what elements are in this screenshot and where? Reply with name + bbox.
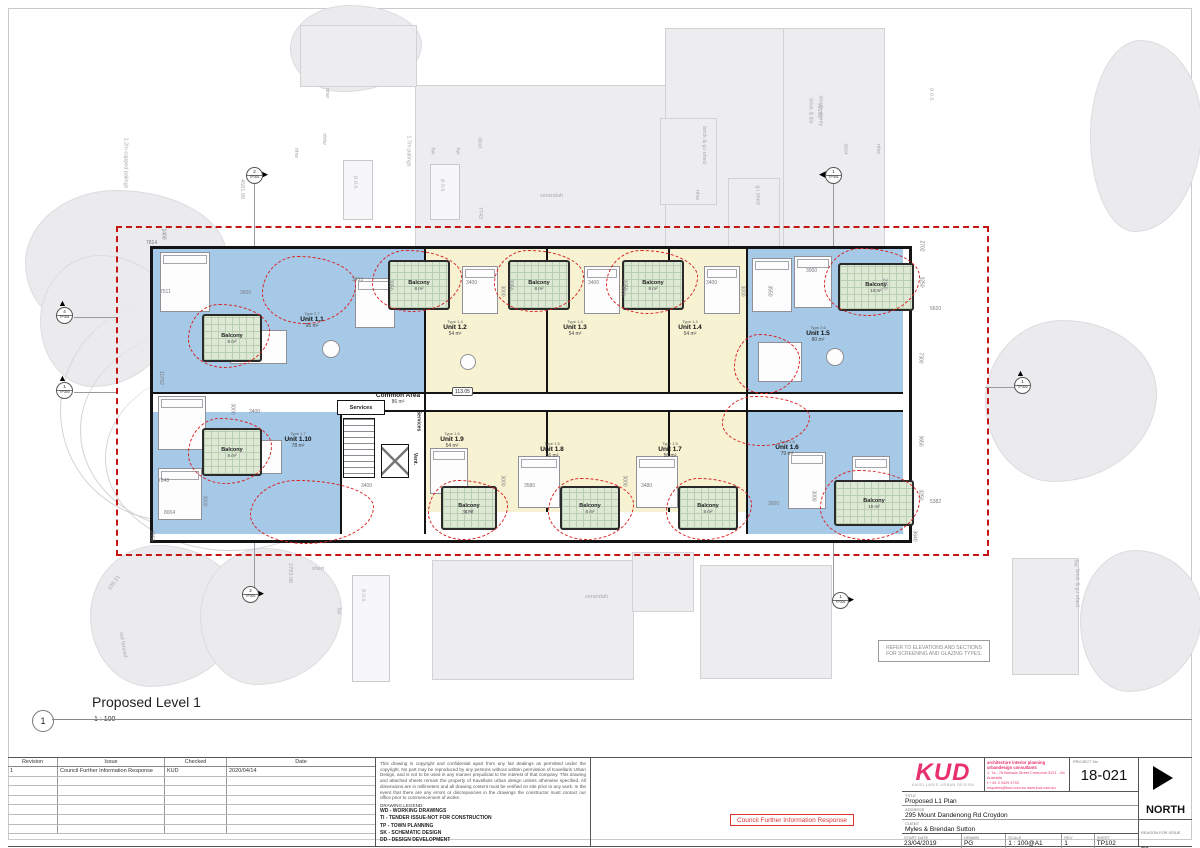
table-row bbox=[8, 795, 375, 805]
revision-table: Revision Issue Checked Date 1 Council Fu… bbox=[8, 758, 376, 846]
neighbour-shed bbox=[632, 552, 694, 612]
dimension-text: 3000 bbox=[806, 268, 817, 274]
table-row: 1 Council Further Information Response K… bbox=[8, 767, 375, 777]
dimension-text: 3400 bbox=[249, 409, 260, 415]
unit-area: 56 m² bbox=[658, 453, 681, 459]
dimension-text: 1400 bbox=[161, 228, 167, 239]
north-cell: NORTH REASON FOR ISSUE TP bbox=[1139, 758, 1192, 846]
unit-name: Unit 1.8 bbox=[540, 446, 563, 453]
context-label: verandah bbox=[540, 193, 563, 199]
context-label: door bbox=[843, 143, 849, 154]
section-marker: ▶ 1TP301 bbox=[830, 588, 850, 610]
table-row bbox=[8, 824, 375, 834]
section-marker: ▶ 2TP301 bbox=[240, 582, 260, 604]
rev-col-header: Issue bbox=[58, 758, 165, 767]
context-label: p.o.s. bbox=[440, 179, 446, 192]
section-marker: ▶ 2TP301 bbox=[244, 163, 264, 185]
neighbour-building bbox=[300, 25, 417, 87]
vent-shaft: Vent. bbox=[412, 453, 418, 465]
section-marker: ▲ 4TP301 bbox=[54, 303, 74, 325]
dimension-text: 3250 bbox=[918, 489, 924, 500]
context-label: g.i shed bbox=[755, 185, 761, 204]
dimension-text: 3000 bbox=[500, 475, 506, 486]
unit-area: 54 m² bbox=[678, 331, 701, 337]
unit-label: Type 1.4 Unit 1.2 54 m² bbox=[443, 319, 466, 337]
council-stamp: Council Further Information Response bbox=[730, 814, 854, 826]
pos-box bbox=[352, 575, 390, 682]
address-row: ADDRESS 295 Mount Dandenong Rd Croydon bbox=[902, 806, 1138, 820]
title-block: KUD KAVELLARIS URBAN DESIGN architecture… bbox=[902, 758, 1139, 846]
context-label: p.o.s. bbox=[361, 589, 367, 602]
context-label: verandah bbox=[585, 594, 608, 600]
reason-for-issue: REASON FOR ISSUE TP bbox=[1139, 819, 1192, 848]
services-room-vertical: Services bbox=[415, 411, 421, 432]
drawing-sheet: Services Services Vent. Common Area 86 m… bbox=[0, 0, 1200, 848]
legend-item: WD - WORKING DRAWINGS bbox=[380, 808, 586, 815]
context-label: single storey bbox=[817, 96, 823, 127]
dimension-text: 2702 bbox=[919, 240, 925, 251]
table-row bbox=[8, 814, 375, 824]
table-row bbox=[8, 805, 375, 815]
rev-col-header: Date bbox=[227, 758, 376, 767]
neighbour-building bbox=[700, 565, 832, 679]
section-line bbox=[74, 317, 116, 318]
unit-area: 54 m² bbox=[563, 331, 586, 337]
context-label: shed bbox=[312, 566, 324, 572]
context-label: nhw bbox=[694, 190, 700, 200]
context-label: hw bbox=[430, 147, 436, 154]
neighbour-shed bbox=[1012, 558, 1079, 675]
context-label: p.o.s. bbox=[353, 176, 359, 189]
north-label: NORTH bbox=[1139, 804, 1192, 816]
context-label: nhw bbox=[875, 144, 881, 154]
dimension-text: 3000 bbox=[811, 490, 817, 501]
kud-logo: KUD KAVELLARIS URBAN DESIGN bbox=[902, 758, 985, 791]
unit-name: Unit 1.6 bbox=[775, 444, 798, 451]
dimension-text: 3480 bbox=[641, 483, 652, 489]
section-marker: ▲ 1TP300 bbox=[54, 378, 74, 400]
context-label: door bbox=[477, 137, 483, 148]
unit-label: Type 1.5 Unit 1.7 56 m² bbox=[658, 441, 681, 459]
drawing-number-bubble: 1 bbox=[32, 710, 54, 732]
unit-area: 54 m² bbox=[440, 443, 463, 449]
pos-box bbox=[343, 160, 373, 220]
unit-area: 56 m² bbox=[540, 453, 563, 459]
dimension-text: 8004 bbox=[164, 510, 175, 516]
context-label: nhw bbox=[293, 148, 299, 158]
dimension-text: 3000 bbox=[768, 501, 779, 507]
consultant-info: architecture interior planning urbandesi… bbox=[985, 758, 1070, 791]
unit-area: 54 m² bbox=[443, 331, 466, 337]
unit-name: Unit 1.7 bbox=[658, 446, 681, 453]
rev-col-header: Checked bbox=[165, 758, 227, 767]
legend-item: DD - DESIGN DEVELOPMENT bbox=[380, 837, 586, 844]
copyright-note: This drawing is copyright and confidenti… bbox=[380, 761, 586, 801]
section-marker: ▲ 1TP300 bbox=[1012, 373, 1032, 395]
dimension-text: 3679 bbox=[462, 510, 473, 516]
context-label: 1.7m palings bbox=[406, 135, 412, 166]
dimension-text: 7814 bbox=[146, 240, 157, 246]
title-underline bbox=[52, 719, 1192, 720]
unit-name: Unit 1.4 bbox=[678, 324, 701, 331]
legend-item: TI - TENDER ISSUE-NOT FOR CONSTRUCTION bbox=[380, 815, 586, 822]
dimension-text: 3000 bbox=[622, 475, 628, 486]
dimension-text: 3000 bbox=[202, 495, 208, 506]
context-label: hw bbox=[1073, 559, 1079, 566]
dimension-text: 10752 bbox=[158, 371, 164, 385]
dimension-text: 7300 bbox=[918, 352, 924, 363]
context-label: 1.2m capped palings bbox=[122, 138, 128, 189]
context-label: p.o.s. bbox=[929, 88, 935, 101]
dimension-text: 3000 bbox=[620, 285, 626, 296]
dimension-text: 2150 bbox=[882, 278, 888, 289]
dimension-text: 3250 bbox=[919, 276, 925, 287]
project-number-cell: PROJECT No 18-021 bbox=[1070, 758, 1138, 791]
table-row bbox=[8, 786, 375, 796]
dimension-text: 3580 bbox=[524, 483, 535, 489]
dimension-text: 3400 bbox=[466, 280, 477, 286]
context-label: 2783.08 bbox=[287, 563, 293, 583]
dimension-text: 3550 bbox=[767, 285, 773, 296]
dimension-text: 3433 bbox=[352, 277, 363, 283]
unit-name: Unit 1.9 bbox=[440, 436, 463, 443]
unit-label: Type 1.4 Unit 1.4 54 m² bbox=[678, 319, 701, 337]
client-row: CLIENT Myles & Brendan Sutton bbox=[902, 820, 1138, 834]
tree bbox=[1090, 40, 1200, 232]
common-area-label: Common Area 86 m² bbox=[376, 392, 420, 405]
meta-row: START DATE 23/04/2019 DRAWN PG SCALE 1 :… bbox=[902, 834, 1138, 848]
unit-label: Type 2.6 Unit 1.5 80 m² bbox=[806, 325, 829, 343]
dimension-text: 3000 bbox=[740, 285, 746, 296]
drawing-title: Proposed Level 1 bbox=[92, 694, 201, 710]
context-label: hw bbox=[336, 607, 342, 614]
context-label: nhw bbox=[324, 88, 330, 98]
dimension-text: 7511 bbox=[160, 289, 171, 295]
section-line bbox=[74, 392, 116, 393]
dimension-text: 7648 bbox=[158, 478, 169, 484]
drawing-legend: WD - WORKING DRAWINGSTI - TENDER ISSUE-N… bbox=[380, 808, 586, 844]
project-number: 18-021 bbox=[1073, 767, 1135, 784]
dimension-text: 3000 bbox=[500, 285, 506, 296]
context-label: brick & g.i shed bbox=[1074, 569, 1080, 607]
unit-name: Unit 1.3 bbox=[563, 324, 586, 331]
table-row bbox=[8, 776, 375, 786]
unit-label: Type 1.7 Unit 1.10 78 m² bbox=[284, 431, 311, 449]
title-row: TITLE Proposed L1 Plan bbox=[902, 792, 1138, 806]
unit-label: Type 1.6 Unit 1.9 54 m² bbox=[440, 431, 463, 449]
lift bbox=[381, 444, 409, 478]
unit-name: Unit 1.10 bbox=[284, 436, 311, 443]
wall bbox=[746, 249, 748, 534]
dimension-text: 3400 bbox=[361, 483, 372, 489]
unit-name: Unit 1.5 bbox=[806, 330, 829, 337]
section-marker: ◀ 1TP301 bbox=[823, 163, 843, 185]
unit-area: 79 m² bbox=[775, 451, 798, 457]
stamp-cell: Council Further Information Response bbox=[591, 758, 902, 846]
dimension-text: 3400 bbox=[588, 280, 599, 286]
dimension-text: 5620 bbox=[930, 306, 941, 312]
level-marker: 113.05 bbox=[452, 387, 473, 396]
unit-label: Type 1.4 Unit 1.3 54 m² bbox=[563, 319, 586, 337]
wall bbox=[153, 392, 903, 394]
dimension-text: 2059 bbox=[149, 530, 155, 541]
tree bbox=[985, 320, 1157, 482]
stair bbox=[343, 418, 375, 478]
unit-label: Type 1.5 Unit 1.8 56 m² bbox=[540, 441, 563, 459]
context-label: 7743 bbox=[477, 207, 483, 219]
unit-name: Unit 1.2 bbox=[443, 324, 466, 331]
neighbour-shed bbox=[660, 118, 717, 205]
screening-note: REFER TO ELEVATIONS AND SECTIONS FOR SCR… bbox=[878, 640, 990, 662]
unit-area: 78 m² bbox=[284, 443, 311, 449]
context-label: hw bbox=[455, 147, 461, 154]
context-label: brick & tile bbox=[808, 98, 814, 123]
dimension-text: 3000 bbox=[230, 403, 236, 414]
rev-col-header: Revision bbox=[8, 758, 58, 767]
dimension-text: 3640 bbox=[912, 530, 918, 541]
unit-area: 80 m² bbox=[806, 337, 829, 343]
context-label: brick & g.i shed bbox=[701, 126, 707, 164]
dimension-text: 5382 bbox=[930, 499, 941, 505]
dimension-text: 3600 bbox=[240, 290, 251, 296]
dimension-text: 2050 bbox=[508, 279, 514, 290]
tree bbox=[1080, 550, 1200, 692]
north-arrow-icon bbox=[1153, 766, 1173, 790]
context-label: nhfw bbox=[321, 133, 327, 145]
dimension-text: 3400 bbox=[706, 280, 717, 286]
neighbour-building bbox=[432, 560, 634, 680]
title-strip: Revision Issue Checked Date 1 Council Fu… bbox=[8, 757, 1192, 847]
legend-item: TP - TOWN PLANNING bbox=[380, 823, 586, 830]
legend-item: SK - SCHEMATIC DESIGN bbox=[380, 830, 586, 837]
dimension-text: 2050 bbox=[388, 279, 394, 290]
notes-cell: This drawing is copyright and confidenti… bbox=[376, 758, 591, 846]
dimension-text: 3650 bbox=[918, 435, 924, 446]
